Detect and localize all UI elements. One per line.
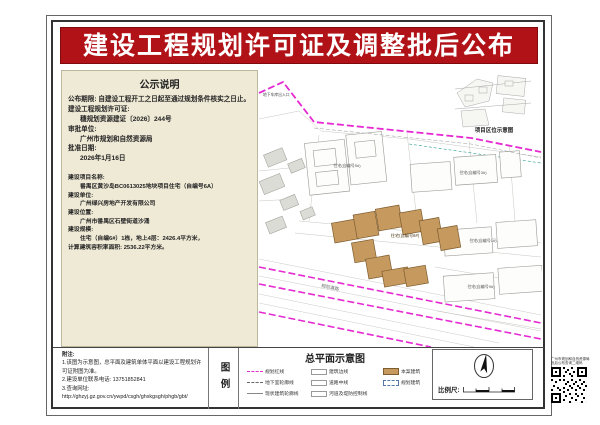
notice-date-value: 2026年1月16日 bbox=[68, 154, 251, 164]
location-inset-map bbox=[455, 76, 531, 127]
qr-block: 广州市规划和自然资源局 批后公布查询二维码 bbox=[551, 357, 593, 408]
notice-panel: 公示说明 公布期限: 自建设工程开工之日起至通过规划条件核实之日止。 建设工程规… bbox=[61, 70, 258, 347]
notes-line-2: 2.建设单位联系电话: 13751852841 bbox=[62, 376, 206, 384]
notice-authority-value: 广州市规划和自然资源局 bbox=[68, 135, 251, 145]
legend-label: 规划红线 bbox=[265, 368, 284, 375]
project-builder-label: 建设单位: bbox=[68, 193, 93, 199]
road-label: 规划道路 bbox=[321, 282, 341, 293]
legend: 规划红线 地下室轮廓线 现状建筑轮廓线 建筑边线 道路中线 河道及堤防控制线 本… bbox=[247, 366, 435, 399]
legend-item-river-control: 河道及堤防控制线 bbox=[311, 390, 383, 397]
project-location: 建设位置: 广州市番禺区石壁街道沙涌 bbox=[68, 209, 251, 226]
notes-title: 附注: bbox=[62, 351, 206, 359]
building-label-main: 住宅(自编号6#) bbox=[391, 232, 420, 239]
legend-item-road-center: 道路中线 bbox=[311, 379, 383, 386]
legend-item-existing-outline: 现状建筑轮廓线 bbox=[247, 390, 311, 397]
building-label-right: 住宅(自编号1#) bbox=[469, 237, 497, 243]
scale-label: 比例尺: bbox=[438, 384, 460, 394]
legend-label: 本案建筑 bbox=[401, 368, 420, 375]
announcement-page: { "colors": { "banner_red": "#b01217", "… bbox=[0, 0, 600, 425]
legend-swatch-redline bbox=[247, 371, 263, 372]
building-label-b: 住宅(自编号3#) bbox=[459, 169, 487, 175]
page-title: 建设工程规划许可证及调整批后公布 bbox=[60, 27, 538, 64]
inset-caption: 项目区位示意图 bbox=[475, 126, 514, 134]
project-builder-value: 广州绿兴房地产开发有限公司 bbox=[68, 200, 251, 209]
legend-item-planned-building: 规划建筑 bbox=[383, 379, 435, 386]
notice-date: 批准日期: 2026年1月16日 bbox=[68, 144, 251, 164]
notice-title: 公示说明 bbox=[68, 76, 251, 91]
notes-block: 附注: 1.该图为示意图，总平面及建筑单体平面以建设工程规划许可证附图为准。 2… bbox=[62, 351, 206, 401]
notice-permit-value: 穗规划资源建证〔2026〕244号 bbox=[68, 115, 251, 125]
legend-label: 河道及堤防控制线 bbox=[329, 390, 367, 397]
notes-line-3: 3.查询网址: bbox=[62, 385, 206, 393]
project-info: 建设项目名称: 番禺区黄沙岛BC0613025地块项目住宅（自编号6A） 建设单… bbox=[68, 174, 251, 252]
notice-period-label: 公布期限: bbox=[68, 96, 97, 103]
legend-swatch-building-edge bbox=[311, 369, 327, 375]
project-location-value: 广州市番禺区石壁街道沙涌 bbox=[68, 218, 251, 227]
legend-label: 现状建筑轮廓线 bbox=[265, 390, 299, 397]
notes-line-1: 1.该图为示意图，总平面及建筑单体平面以建设工程规划许可证附图为准。 bbox=[62, 359, 206, 376]
project-name-value: 番禺区黄沙岛BC0613025地块项目住宅（自编号6A） bbox=[68, 183, 251, 192]
plan-title: 总平面示意图 bbox=[270, 350, 400, 365]
legend-item-redline: 规划红线 bbox=[247, 368, 311, 375]
legend-label: 地下室轮廓线 bbox=[265, 379, 294, 386]
notice-authority: 审批单位: 广州市规划和自然资源局 bbox=[68, 125, 251, 145]
entrance-label: 地下车库出入口 bbox=[263, 92, 290, 97]
north-arrow-icon bbox=[473, 351, 495, 379]
project-scope: 建设规模: 住宅（自编6#）1栋，地上4层：2426.4平方米， bbox=[68, 226, 251, 243]
notice-permit-label: 建设工程规划许可证: bbox=[68, 106, 130, 113]
legend-label: 建筑边线 bbox=[329, 368, 348, 375]
legend-swatch-basement bbox=[247, 382, 263, 383]
notice-period-value: 自建设工程开工之日起至通过规划条件核实之日止。 bbox=[98, 96, 250, 103]
legend-swatch-river-control bbox=[311, 391, 327, 397]
legend-item-basement: 地下室轮廓线 bbox=[247, 379, 311, 386]
notice-date-label: 批准日期: bbox=[68, 145, 97, 152]
legend-swatch-road-center bbox=[311, 380, 327, 386]
project-builder: 建设单位: 广州绿兴房地产开发有限公司 bbox=[68, 192, 251, 209]
qr-caption-line2: 批后公布查询二维码 bbox=[551, 361, 593, 365]
legend-keybox: 图例 bbox=[208, 348, 239, 409]
bottom-divider bbox=[53, 347, 545, 348]
building-label-a: 住宅(自编号5#) bbox=[333, 162, 361, 168]
notice-period: 公布期限: 自建设工程开工之日起至通过规划条件核实之日止。 bbox=[68, 95, 251, 105]
project-name: 建设项目名称: 番禺区黄沙岛BC0613025地块项目住宅（自编号6A） bbox=[68, 174, 251, 191]
legend-item-main-building: 本案建筑 bbox=[383, 368, 435, 375]
notes-url: http://ghzyj.gz.gov.cn/ywpd/csgh/ghxkgsg… bbox=[62, 393, 206, 401]
building-label-lower: 住宅(自编号9#) bbox=[467, 283, 495, 289]
legend-label: 道路中线 bbox=[329, 379, 348, 386]
legend-swatch-existing-outline bbox=[247, 393, 263, 394]
scale-bar-icon bbox=[463, 385, 515, 394]
project-location-label: 建设位置: bbox=[68, 210, 93, 216]
legend-keybox-label: 图例 bbox=[217, 362, 231, 395]
notice-permit: 建设工程规划许可证: 穗规划资源建证〔2026〕244号 bbox=[68, 105, 251, 125]
legend-item-building-edge: 建筑边线 bbox=[311, 368, 383, 375]
qr-code bbox=[551, 367, 587, 403]
site-plan-map: 项目区位示意图 地下车库出入口 规划道路 住宅(自编号6#) 住宅(自编号5#)… bbox=[258, 71, 542, 347]
legend-swatch-planned-building bbox=[383, 380, 399, 386]
project-far: 计算建筑容积率面积: 2536.22平方米。 bbox=[68, 244, 251, 253]
main-buildings bbox=[331, 205, 460, 287]
legend-label: 规划建筑 bbox=[401, 379, 420, 386]
legend-swatch-main-building bbox=[383, 368, 399, 375]
notice-authority-label: 审批单位: bbox=[68, 126, 97, 133]
scale-bar-row: 比例尺: bbox=[438, 384, 515, 394]
north-scale-box: 比例尺: bbox=[432, 349, 533, 400]
project-scope-value: 住宅（自编6#）1栋，地上4层：2426.4平方米， bbox=[68, 235, 251, 244]
project-scope-label: 建设规模: bbox=[68, 227, 93, 233]
project-name-label: 建设项目名称: bbox=[68, 175, 105, 181]
